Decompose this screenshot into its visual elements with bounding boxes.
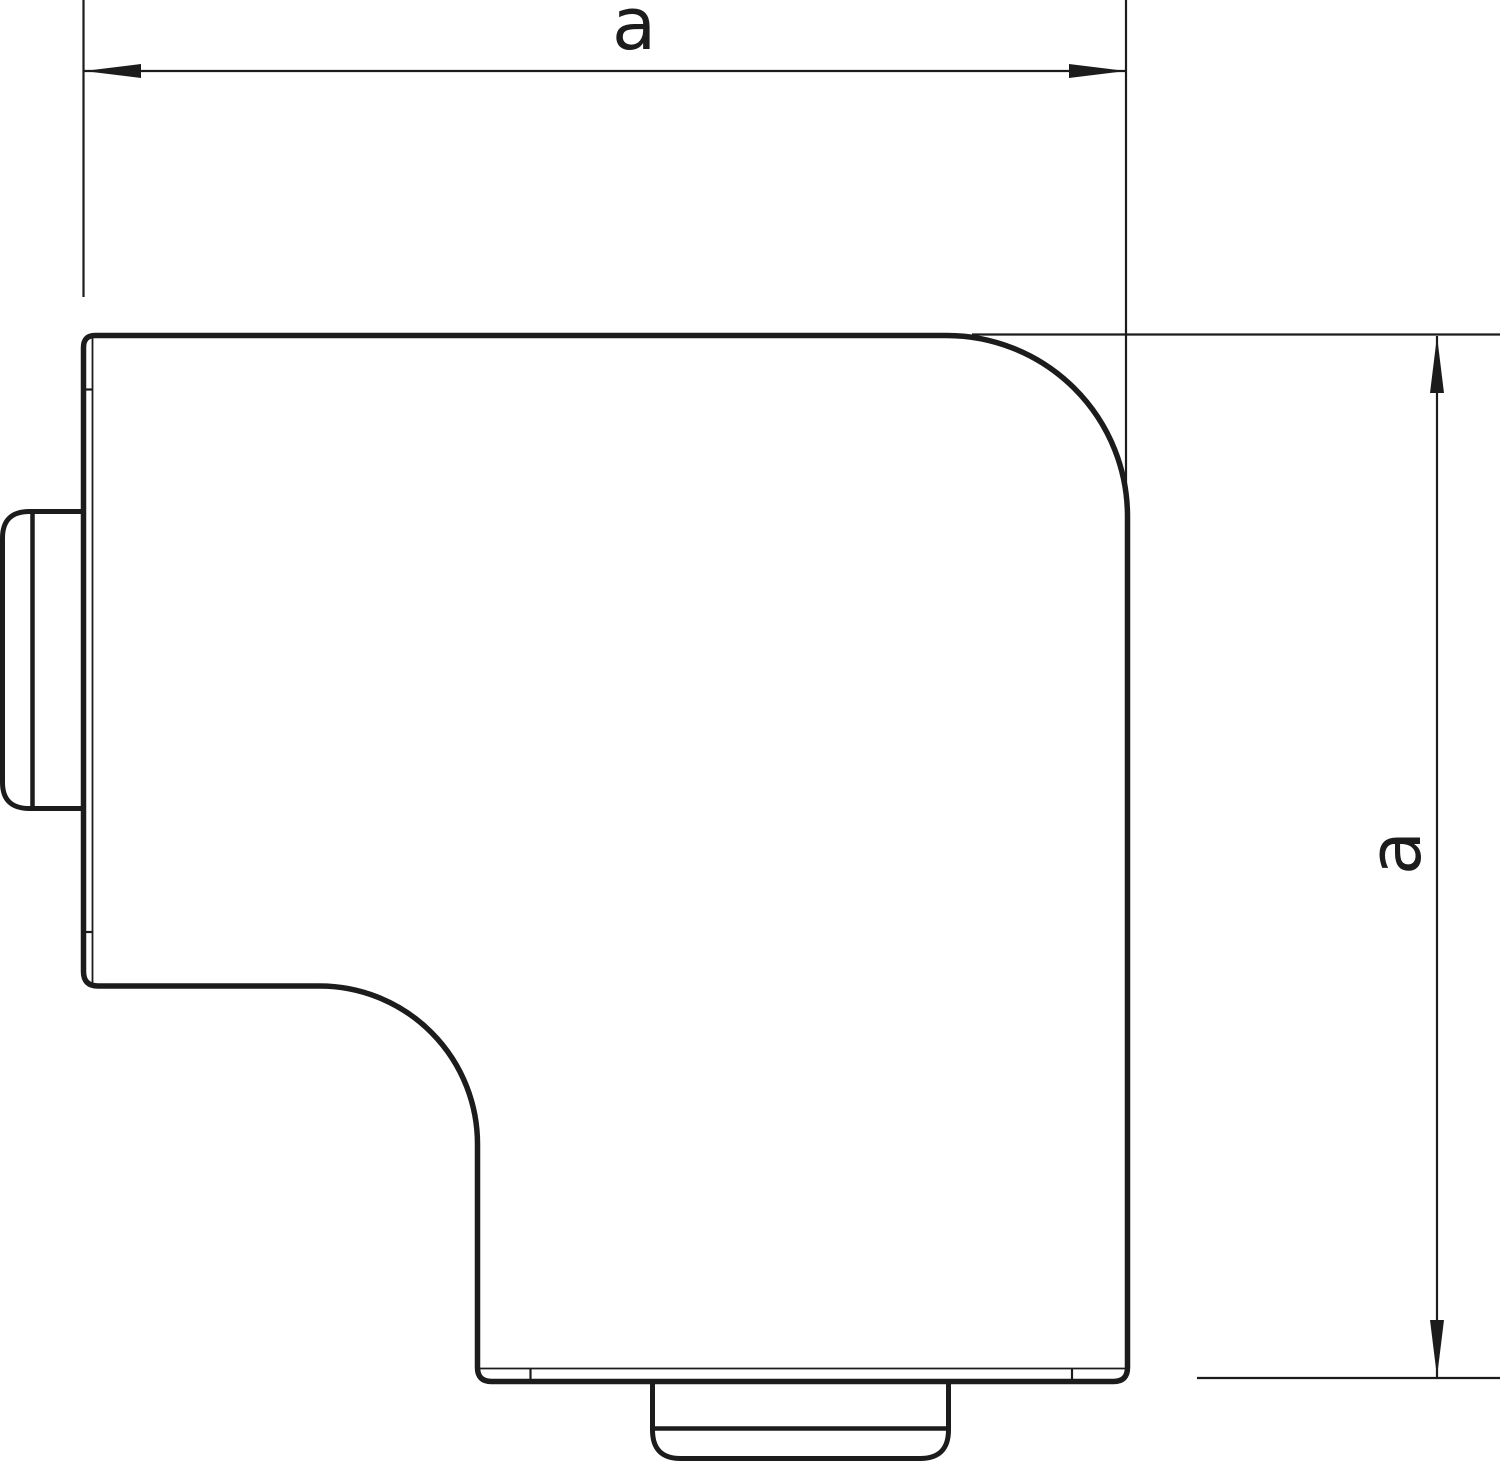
drawing-canvas: a a <box>0 0 1500 1462</box>
dimension-label-horizontal: a <box>612 0 656 64</box>
bottom-connector-stub <box>653 1372 949 1459</box>
dimension-label-vertical: a <box>1355 813 1435 893</box>
technical-drawing <box>0 0 1500 1462</box>
